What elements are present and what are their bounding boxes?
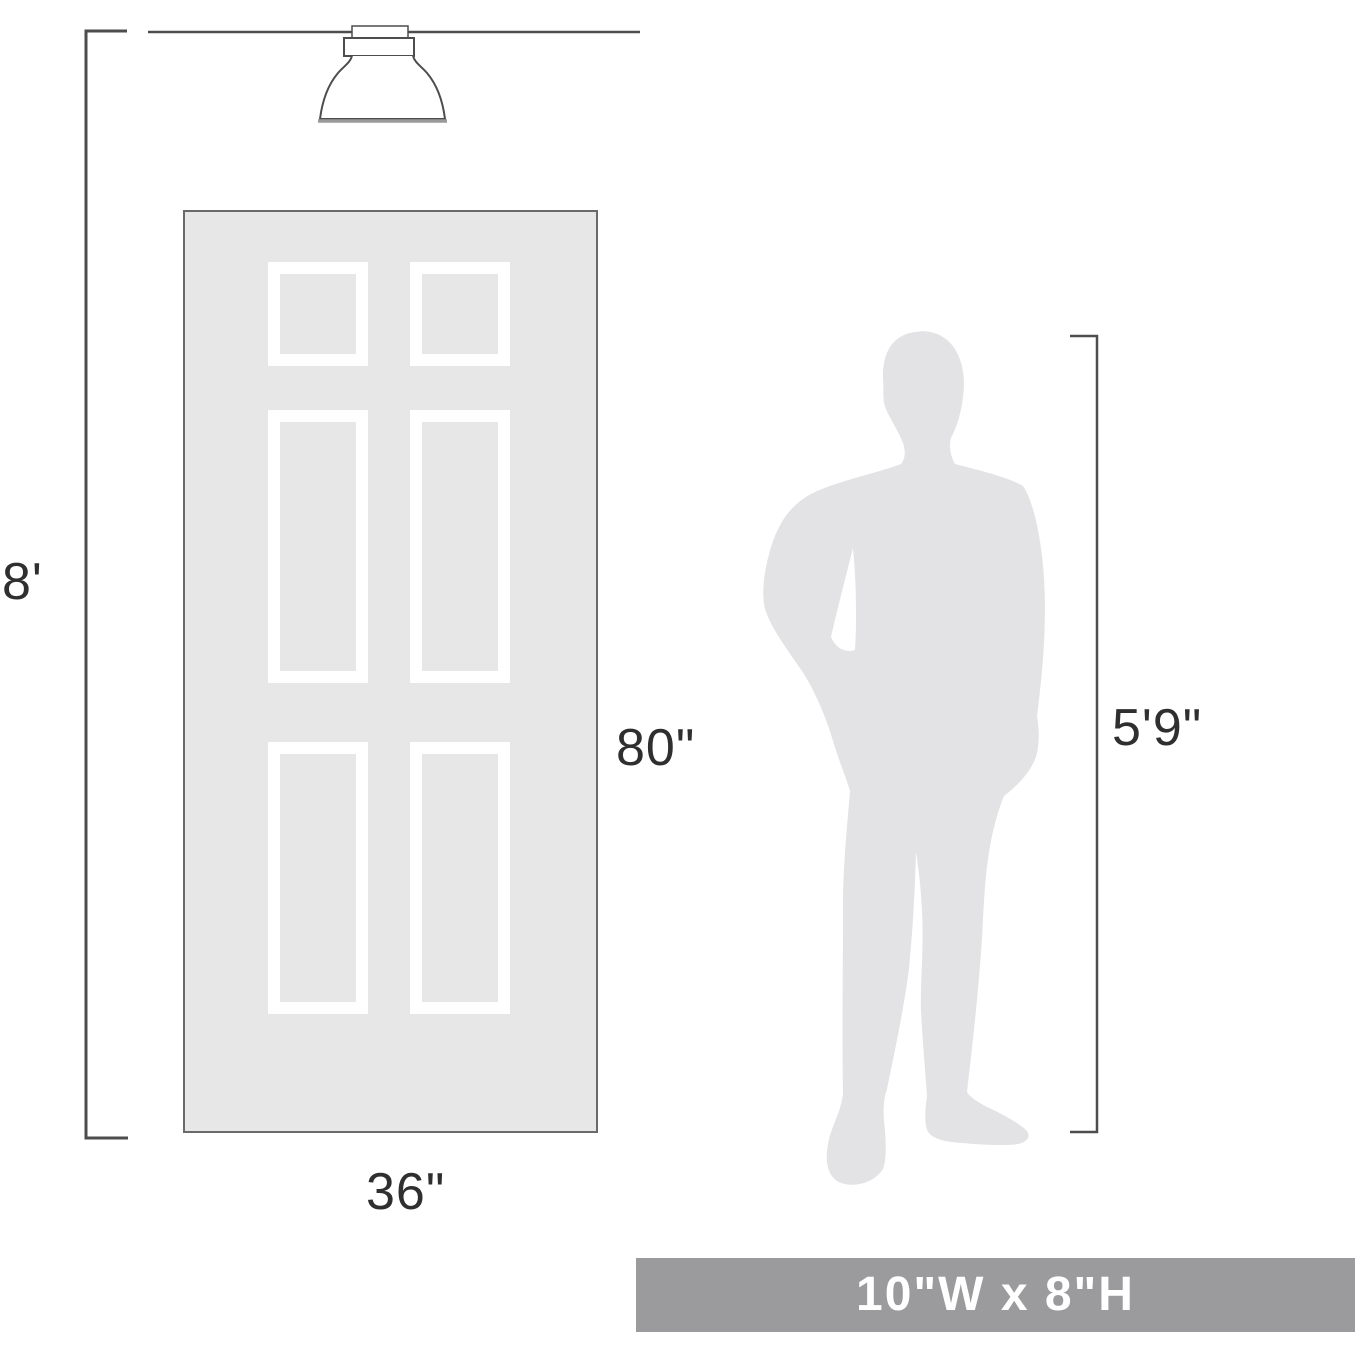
door-panel — [410, 410, 510, 683]
person-height-label: 5'9" — [1112, 702, 1202, 754]
flush-mount-light-icon — [318, 26, 447, 121]
person-height-bracket — [1070, 336, 1097, 1132]
ceiling-height-bracket — [86, 31, 128, 1138]
door-panel — [268, 742, 368, 1014]
door-panel — [268, 410, 368, 683]
person-silhouette-icon — [763, 331, 1045, 1185]
product-dimensions-banner: 10"W x 8"H — [636, 1258, 1355, 1332]
scale-diagram: 8' 80" 36" 5'9" 10"W x 8"H — [0, 0, 1360, 1360]
door-height-label: 80" — [616, 722, 695, 774]
ceiling-height-label: 8' — [2, 556, 43, 608]
product-dimensions-text: 10"W x 8"H — [856, 1271, 1135, 1319]
door-panel — [410, 742, 510, 1014]
door-panel — [410, 262, 510, 366]
door-illustration — [183, 210, 598, 1133]
door-width-label: 36" — [366, 1166, 445, 1218]
door-panel — [268, 262, 368, 366]
